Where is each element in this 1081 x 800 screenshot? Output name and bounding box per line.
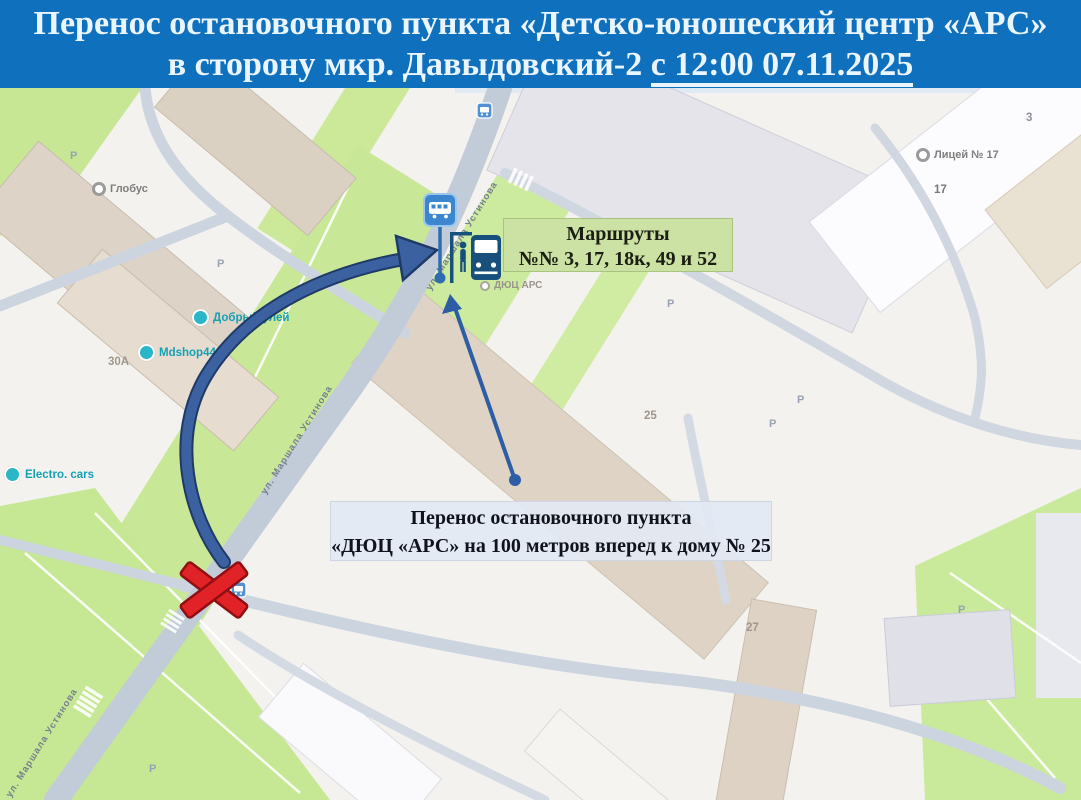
effective-date: с 12:00 07.11.2025 <box>651 46 914 87</box>
routes-box: Маршруты №№ 3, 17, 18к, 49 и 52 <box>503 218 733 272</box>
routes-title: Маршруты <box>504 222 732 247</box>
pointer-arrow <box>442 294 521 486</box>
bus-shelter-icon <box>450 232 501 283</box>
map-annotations <box>0 88 1081 800</box>
map: ул. Маршала Устинова ул. Маршала Устинов… <box>0 88 1081 800</box>
title-line-2: в сторону мкр. Давыдовский-2 с 12:00 07.… <box>0 44 1081 85</box>
poster-title: Перенос остановочного пункта «Детско-юно… <box>0 0 1081 88</box>
transit-stop-icon <box>477 103 492 118</box>
routes-list: №№ 3, 17, 18к, 49 и 52 <box>504 247 732 272</box>
title-line-1: Перенос остановочного пункта «Детско-юно… <box>0 0 1081 44</box>
relocation-caption: Перенос остановочного пункта «ДЮЦ «АРС» … <box>330 501 772 561</box>
bus-stop-relocation-poster: { "header": { "line1": "Перенос останово… <box>0 0 1081 800</box>
